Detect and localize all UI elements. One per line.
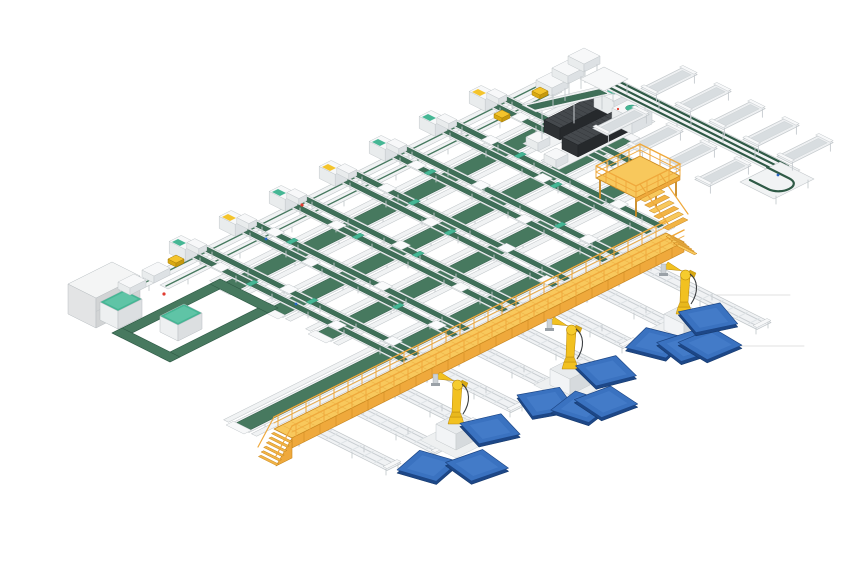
factory-scene-svg [0,0,860,580]
blue-sensor [265,238,268,241]
red-indicator [300,203,303,206]
trough-conveyor [695,156,751,193]
stub-conveyor [315,428,401,476]
red-indicator [162,292,165,295]
factory-3d-render [0,0,860,580]
belt-u-turn [740,162,814,204]
blue-sensor [777,174,780,177]
blue-sensor [295,303,298,306]
